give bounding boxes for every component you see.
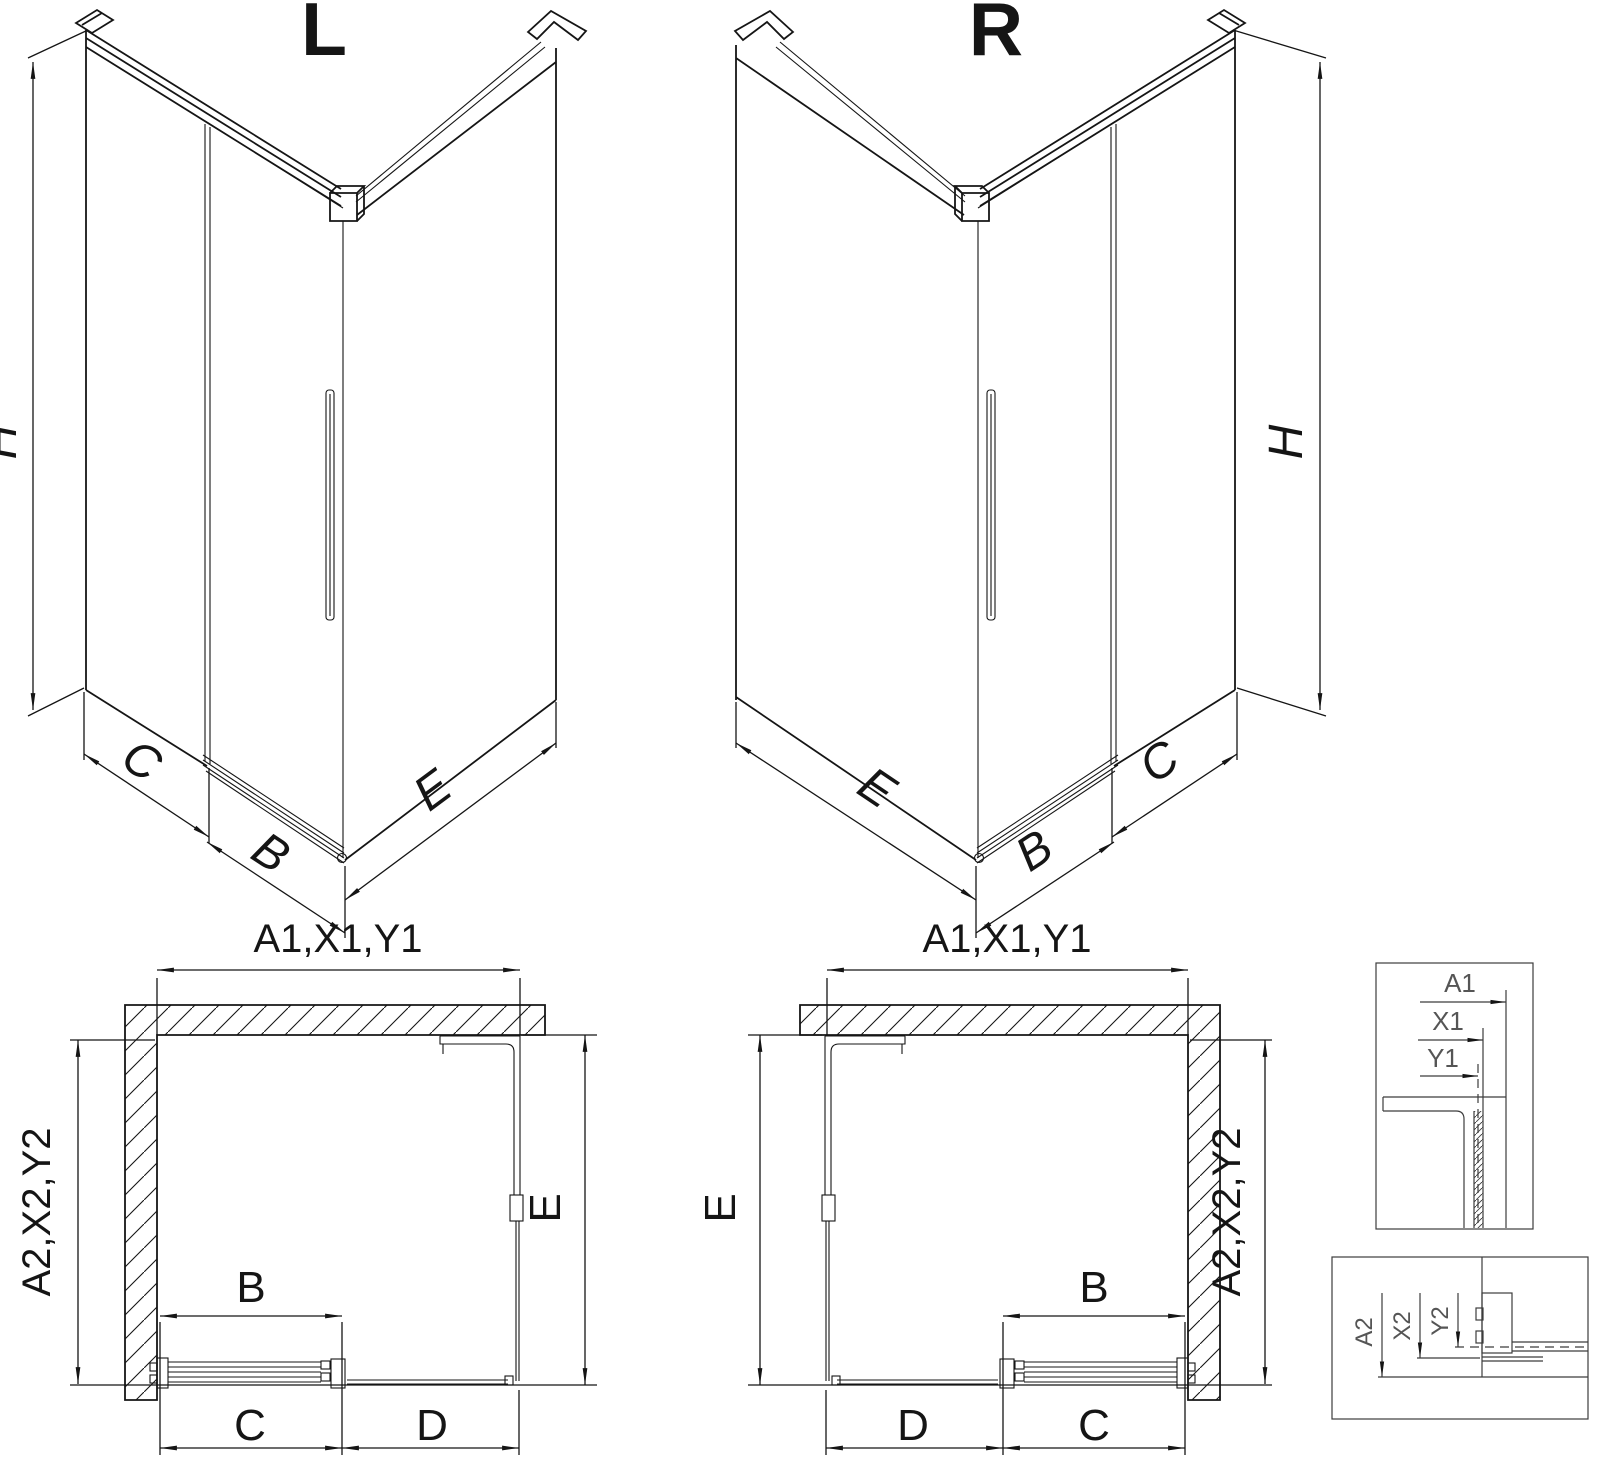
dim-label-B: B (1079, 1263, 1108, 1312)
dim-label-D: D (897, 1401, 929, 1450)
drawing-page: L (0, 0, 1600, 1458)
detail-label-Y1: Y1 (1427, 1043, 1459, 1073)
dim-label-A1X1Y1: A1,X1,Y1 (922, 917, 1091, 961)
canvas-background (0, 0, 1600, 1458)
detail-label-A1: A1 (1444, 968, 1476, 998)
detail-label-A2: A2 (1351, 1317, 1378, 1346)
dim-label-H: H (0, 424, 27, 459)
dim-label-A2X2Y2: A2,X2,Y2 (15, 1127, 59, 1296)
detail-label-X1: X1 (1432, 1006, 1464, 1036)
variant-label-right: R (969, 0, 1023, 71)
dim-label-E: E (521, 1193, 570, 1222)
dim-label-H: H (1260, 424, 1313, 459)
dim-label-A2X2Y2: A2,X2,Y2 (1205, 1127, 1249, 1296)
variant-label-left: L (301, 0, 347, 71)
detail-label-Y2: Y2 (1427, 1306, 1454, 1335)
detail-label-X2: X2 (1389, 1311, 1416, 1340)
dim-label-B: B (236, 1263, 265, 1312)
glass-section-hatch (1474, 1111, 1483, 1228)
dim-label-A1X1Y1: A1,X1,Y1 (253, 917, 422, 961)
dim-label-C: C (234, 1401, 266, 1450)
dim-label-C: C (1078, 1401, 1110, 1450)
dim-label-D: D (416, 1401, 448, 1450)
shower-enclosure-technical-drawing: L (0, 0, 1600, 1458)
dim-label-E: E (696, 1193, 745, 1222)
